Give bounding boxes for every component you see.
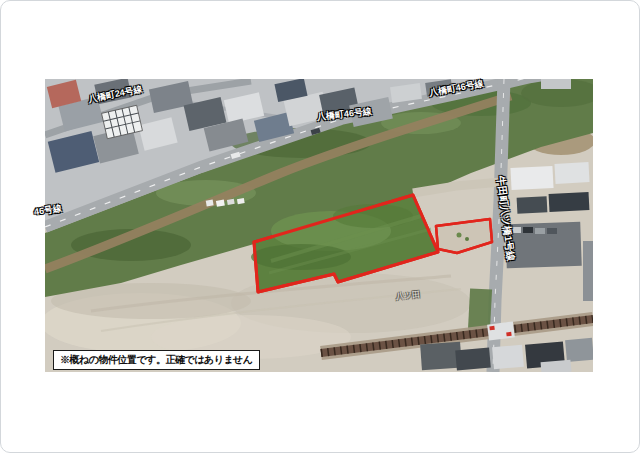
location-disclaimer-badge: ※概ねの物件位置です。正確ではありません xyxy=(53,350,260,370)
railway-crossing xyxy=(487,321,515,340)
listing-map-card: 八橋町24号線 46号線 八橋町46号線 八橋町46号線 牛田町八ツ橋1号線 八… xyxy=(0,0,640,453)
